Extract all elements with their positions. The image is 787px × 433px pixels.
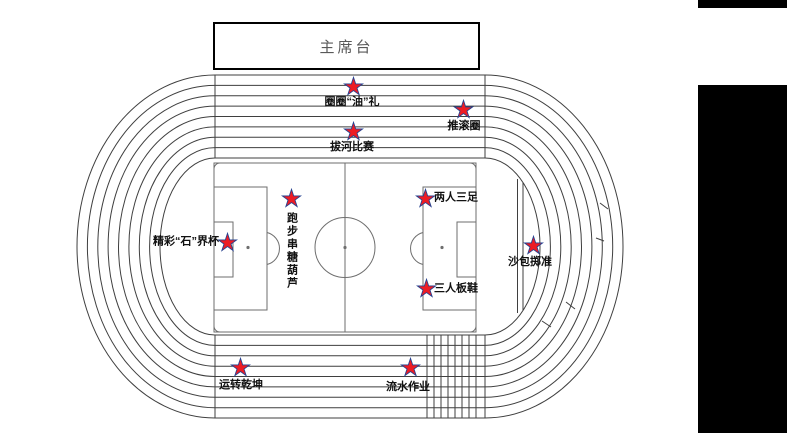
star-icon-liushui-zuoye bbox=[400, 357, 421, 377]
station-label-paobu-chuan-tanghulu: 跑步串糖葫芦 bbox=[286, 212, 297, 290]
top-right-black-strip bbox=[698, 0, 787, 8]
station-label-shabao-zhizhun: 沙包掷准 bbox=[508, 256, 552, 269]
right-black-panel bbox=[698, 85, 787, 433]
star-icon-quanquan-youli bbox=[343, 76, 364, 96]
star-icon-paobu-chuan-tanghulu bbox=[281, 188, 302, 208]
star-icon-bahe-bisai bbox=[343, 121, 364, 141]
station-label-yunzhuan-qiankun: 运转乾坤 bbox=[219, 379, 263, 392]
star-icon-liangren-sanzu bbox=[415, 188, 436, 208]
station-label-sanren-banxie: 三人板鞋 bbox=[434, 283, 478, 296]
star-icon-yunzhuan-qiankun bbox=[230, 357, 251, 377]
station-label-bahe-bisai: 拔河比赛 bbox=[330, 141, 374, 154]
star-icon-tui-gun-quan bbox=[453, 99, 474, 119]
station-label-liushui-zuoye: 流水作业 bbox=[386, 381, 430, 394]
star-icon-jingcai-shi-jie-bei bbox=[217, 232, 238, 252]
station-label-liangren-sanzu: 两人三足 bbox=[434, 192, 478, 205]
sports-field-map: 主席台 圈圈“油”礼推滚圈拔河比赛跑步串糖葫芦精彩“石”界杯两人三足三人板鞋沙包… bbox=[0, 0, 787, 433]
station-label-jingcai-shi-jie-bei: 精彩“石”界杯 bbox=[153, 236, 219, 249]
station-label-quanquan-youli: 圈圈“油”礼 bbox=[325, 96, 380, 109]
station-label-tui-gun-quan: 推滚圈 bbox=[448, 120, 481, 133]
star-icon-shabao-zhizhun bbox=[523, 235, 544, 255]
stations-layer: 圈圈“油”礼推滚圈拔河比赛跑步串糖葫芦精彩“石”界杯两人三足三人板鞋沙包掷准运转… bbox=[0, 0, 787, 433]
